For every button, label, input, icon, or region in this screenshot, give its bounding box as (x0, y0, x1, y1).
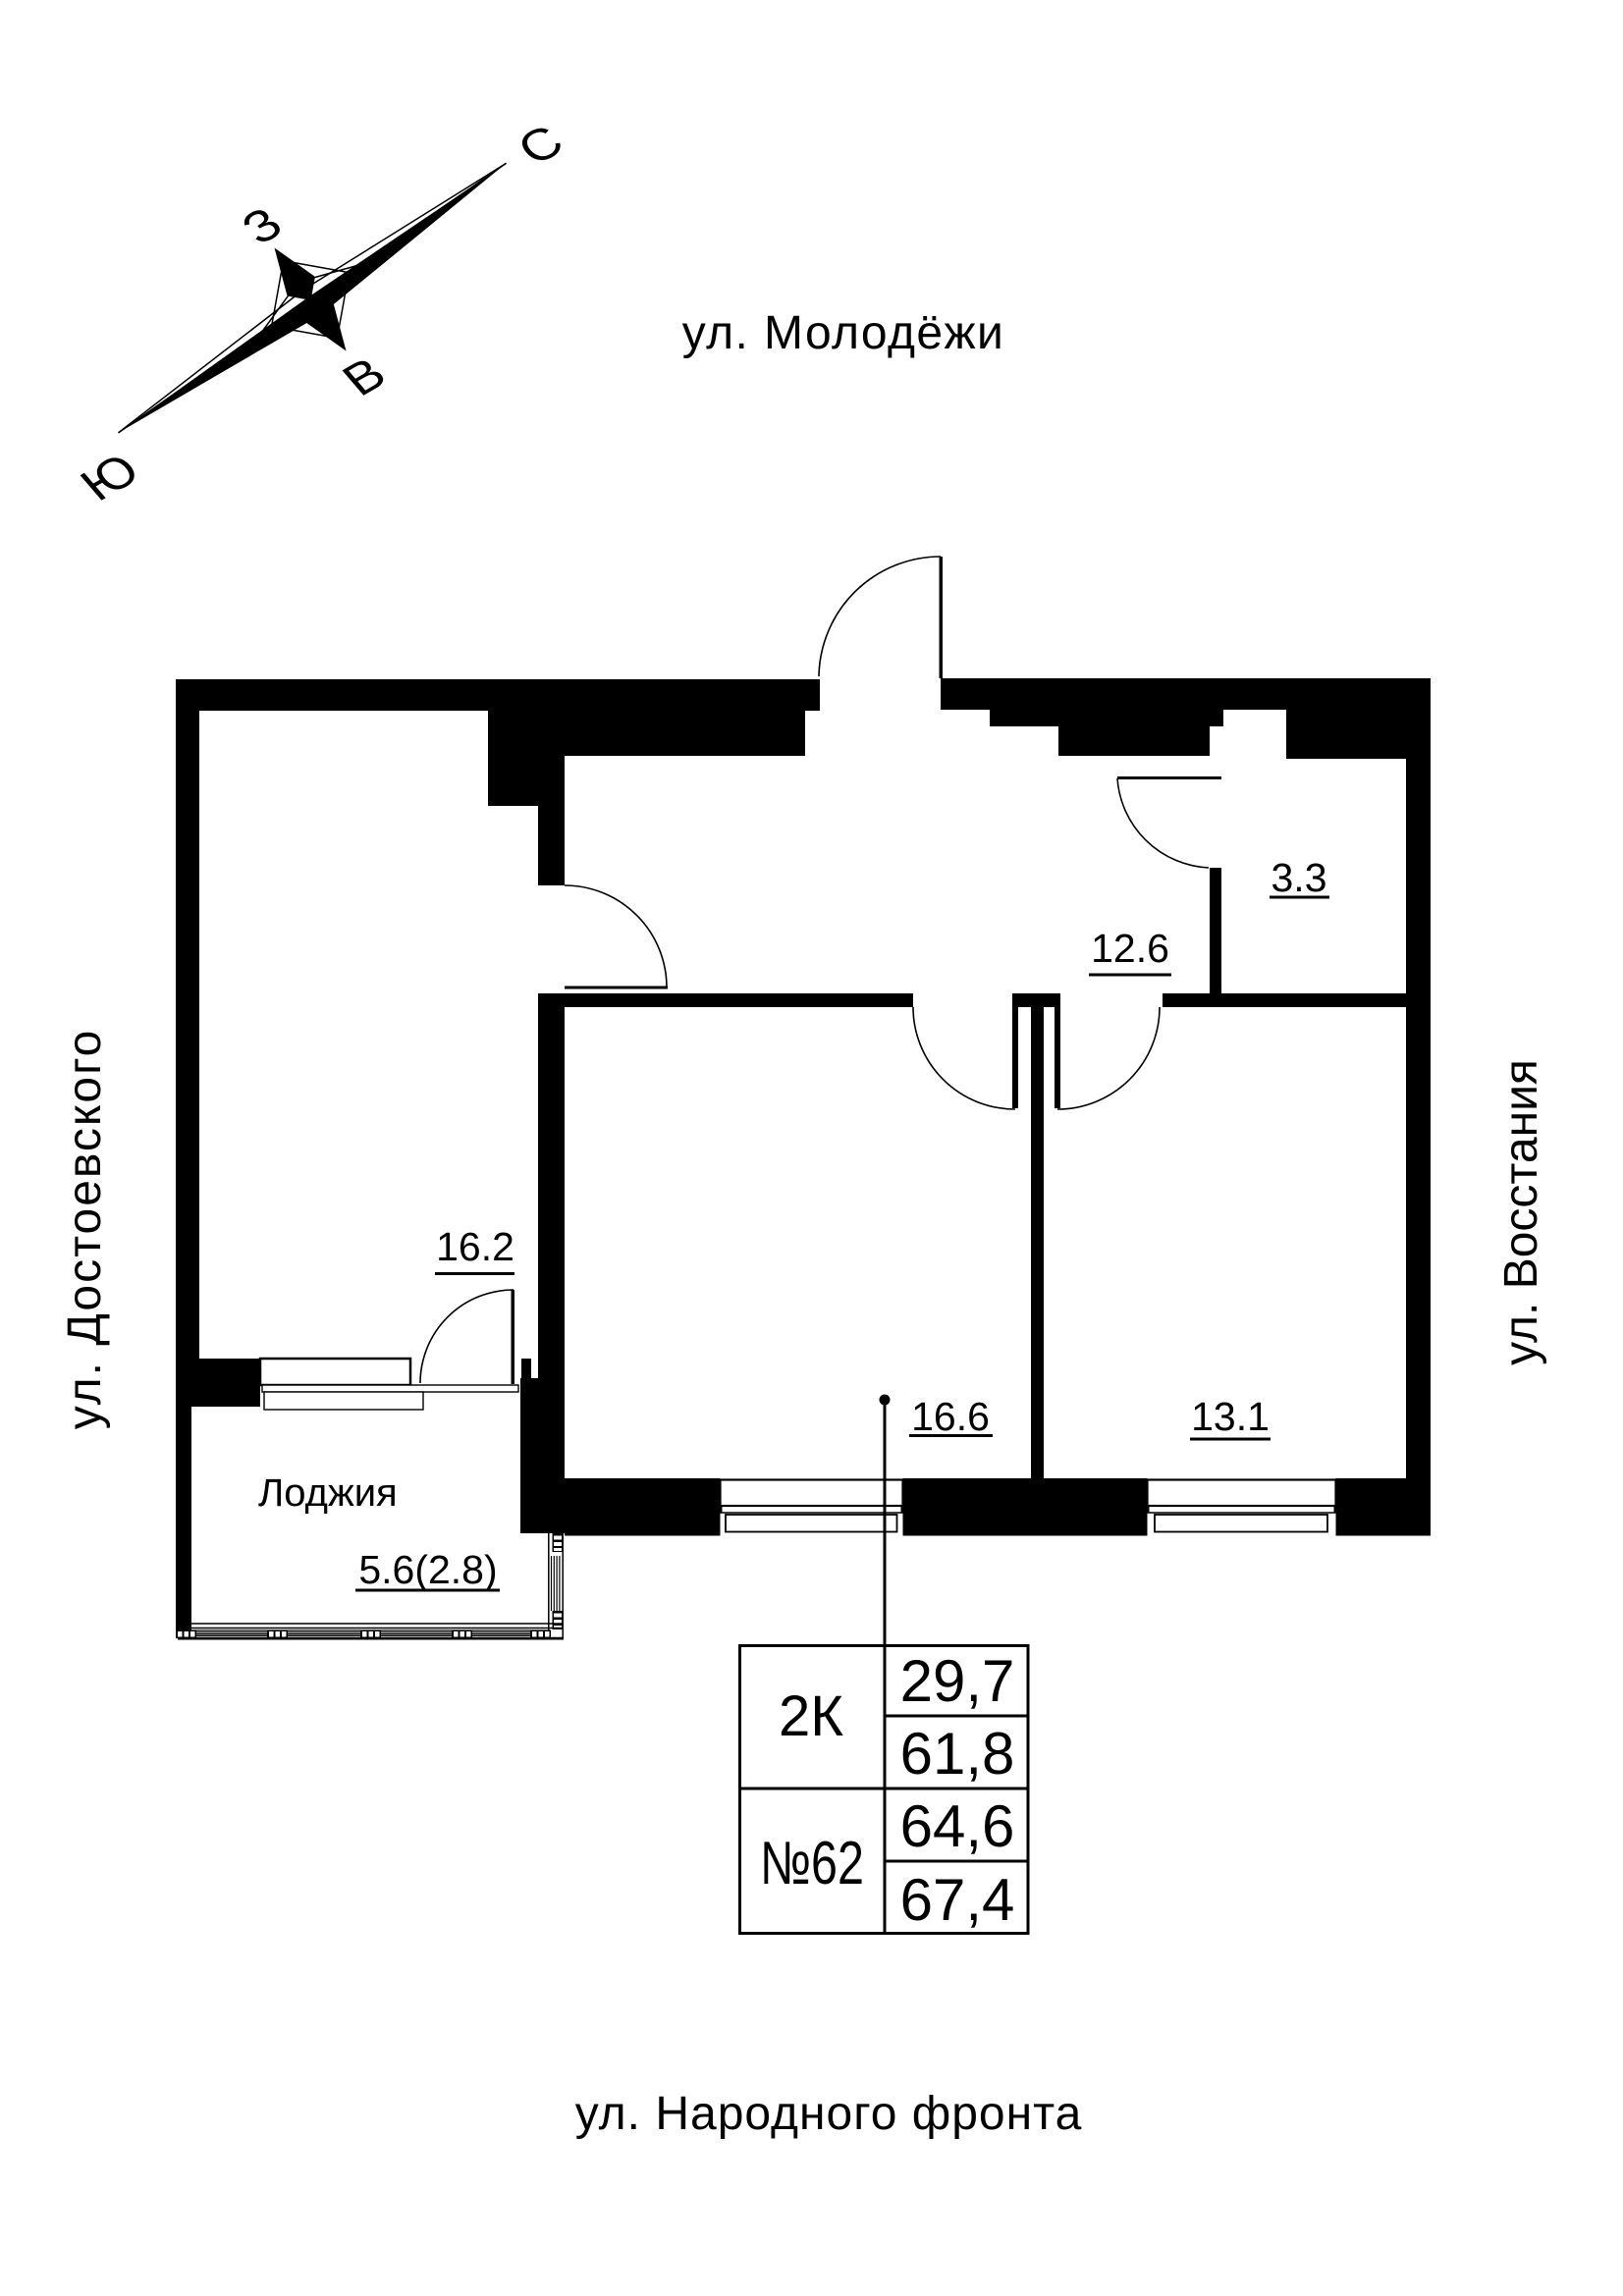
svg-text:3.3: 3.3 (1271, 855, 1327, 900)
svg-text:13.1: 13.1 (1191, 1394, 1270, 1439)
svg-text:67,4: 67,4 (900, 1867, 1015, 1933)
svg-text:29,7: 29,7 (900, 1648, 1015, 1714)
svg-text:№62: №62 (760, 1830, 864, 1897)
svg-text:64,6: 64,6 (900, 1793, 1015, 1859)
svg-text:16.6: 16.6 (911, 1394, 990, 1439)
svg-text:61,8: 61,8 (900, 1721, 1015, 1787)
svg-text:5.6(2.8): 5.6(2.8) (358, 1547, 497, 1592)
svg-text:12.6: 12.6 (1091, 926, 1169, 971)
svg-text:ул. Достоевского: ул. Достоевского (59, 1029, 111, 1430)
svg-text:16.2: 16.2 (436, 1224, 514, 1269)
svg-text:Лоджия: Лоджия (258, 1471, 398, 1515)
svg-text:2К: 2К (779, 1684, 843, 1748)
svg-text:ул. Восстания: ул. Восстания (1495, 1059, 1547, 1365)
svg-text:ул. Народного фронта: ул. Народного фронта (575, 2088, 1083, 2140)
svg-text:ул. Молодёжи: ул. Молодёжи (682, 307, 1004, 359)
